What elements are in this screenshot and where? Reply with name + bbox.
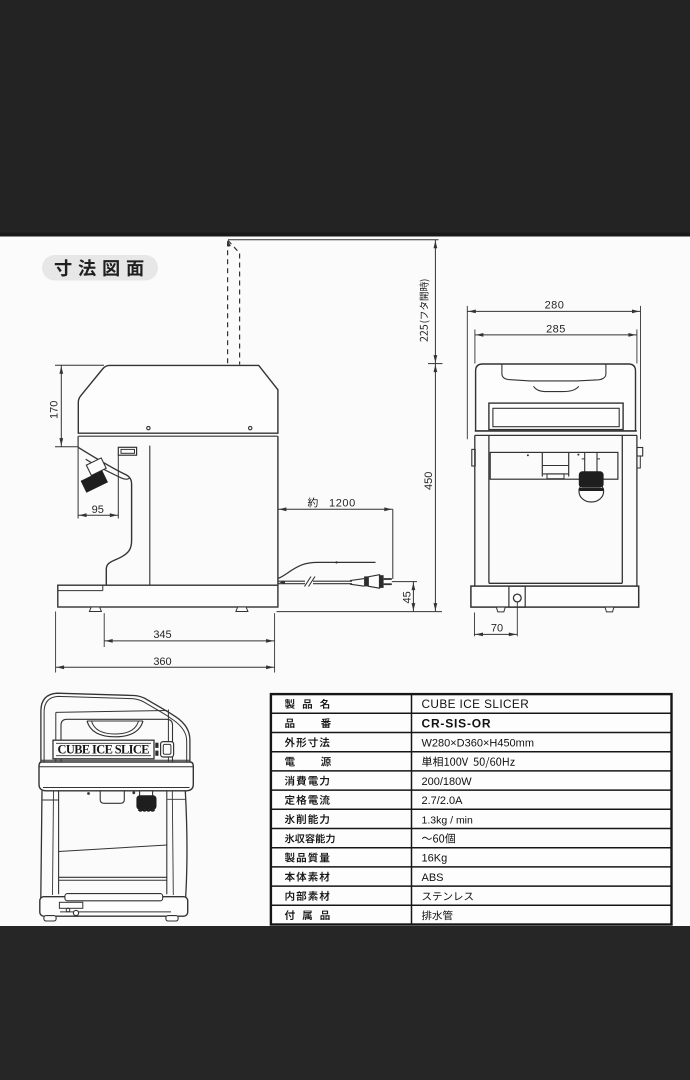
svg-text:ABS: ABS xyxy=(422,872,444,884)
svg-text:1.3kg / min: 1.3kg / min xyxy=(422,814,474,826)
svg-text:280: 280 xyxy=(545,300,565,312)
svg-text:95: 95 xyxy=(92,504,104,516)
svg-text:2.7/2.0A: 2.7/2.0A xyxy=(422,795,464,807)
svg-text:W280×D360×H450mm: W280×D360×H450mm xyxy=(422,738,535,750)
svg-text:CUBE ICE SLICER: CUBE ICE SLICER xyxy=(422,697,530,711)
svg-text:170: 170 xyxy=(49,401,61,419)
svg-text:200/180W: 200/180W xyxy=(422,776,473,788)
svg-text:360: 360 xyxy=(153,656,171,668)
svg-text:345: 345 xyxy=(153,629,171,641)
svg-text:45: 45 xyxy=(402,591,414,603)
svg-text:1200: 1200 xyxy=(329,498,356,510)
svg-text:16Kg: 16Kg xyxy=(422,853,448,865)
svg-text:70: 70 xyxy=(491,623,503,635)
svg-text:CUBE ICE SLICE: CUBE ICE SLICE xyxy=(58,742,150,756)
svg-text:CR-SIS-OR: CR-SIS-OR xyxy=(422,716,492,730)
svg-text:285: 285 xyxy=(546,324,566,336)
svg-text:450: 450 xyxy=(423,472,435,490)
